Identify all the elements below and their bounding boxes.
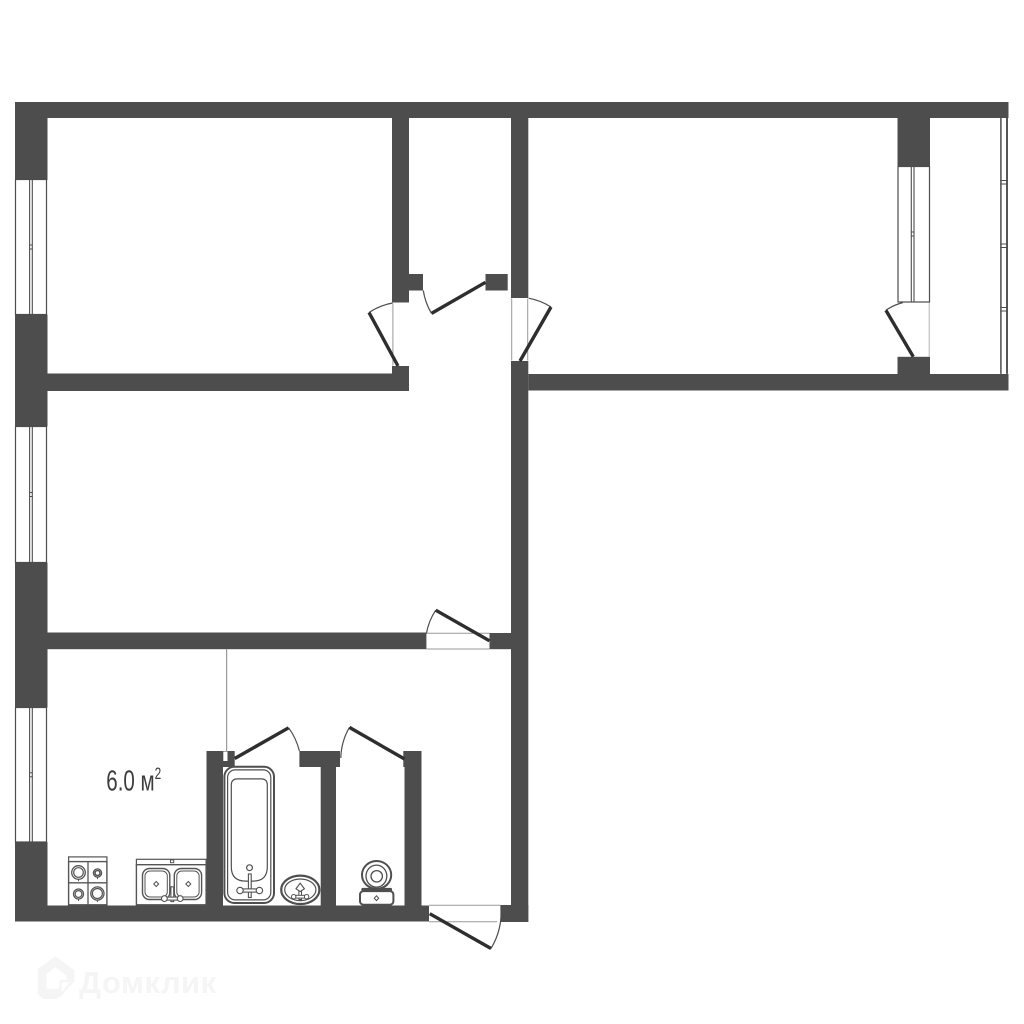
svg-text:6.0 м2: 6.0 м2	[106, 765, 161, 797]
svg-text:Домклик: Домклик	[79, 965, 217, 1000]
